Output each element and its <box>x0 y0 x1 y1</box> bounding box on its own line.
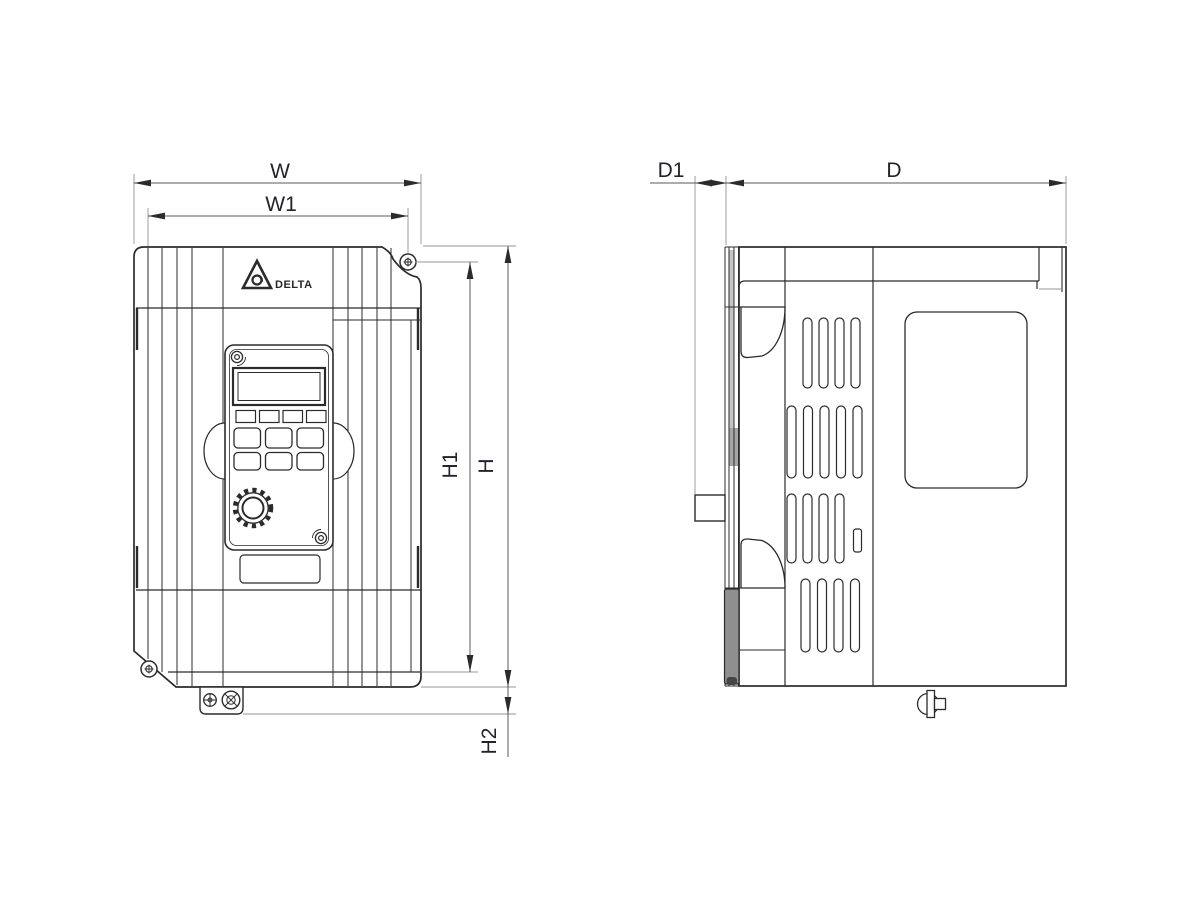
mounting-hole-bottom-left-icon <box>141 661 157 677</box>
function-key <box>307 411 327 423</box>
technical-drawing-canvas: DELTA <box>0 0 1200 900</box>
dim-h-arrow-top <box>505 246 512 263</box>
ground-screw-large-icon <box>222 691 240 709</box>
dim-h-arrow-bottom <box>505 670 512 687</box>
dim-h2-arrow <box>505 697 512 714</box>
dim-h1-arrow-bottom <box>467 655 474 672</box>
dimension-w: W <box>134 160 421 186</box>
dim-h1-arrow-top <box>467 262 474 279</box>
dimension-h2: H2 <box>478 687 511 757</box>
keypad-label-plate <box>240 555 320 583</box>
ground-screw-small-icon <box>204 694 217 707</box>
dimension-w1: W1 <box>148 193 408 219</box>
logo-wordmark: DELTA <box>275 279 313 291</box>
keypad-panel <box>225 345 333 550</box>
keypad-button <box>234 453 261 471</box>
dimension-h: H <box>475 246 511 687</box>
keypad-button <box>297 453 324 471</box>
dim-label-h: H <box>475 458 498 473</box>
keypad-button <box>234 428 261 448</box>
dim-label-w1: W1 <box>265 193 297 216</box>
side-view <box>695 247 1066 718</box>
dim-label-w: W <box>270 160 290 183</box>
keypad-button <box>266 453 293 471</box>
dim-w-arrow-left <box>134 180 151 187</box>
dimension-d1: D1 <box>658 159 727 186</box>
front-view: DELTA <box>134 247 421 714</box>
dim-d1-arrow-left <box>695 180 712 187</box>
dimension-drawing: DELTA <box>0 0 1200 900</box>
function-key <box>283 411 303 423</box>
side-nameplate <box>905 312 1027 488</box>
mounting-plate-bar-cap <box>727 677 738 685</box>
dim-d-arrow-left <box>727 180 744 187</box>
dim-label-d1: D1 <box>658 159 685 182</box>
mounting-plate-bar <box>725 589 740 684</box>
keypad-button <box>297 428 324 448</box>
dimension-h1: H1 <box>439 262 473 672</box>
dim-label-h1: H1 <box>439 452 462 479</box>
function-key <box>236 411 256 423</box>
dim-w1-arrow-right <box>391 213 408 220</box>
dim-w1-arrow-left <box>148 213 165 220</box>
dim-d-arrow-right <box>1049 180 1066 187</box>
mounting-bracket-tab <box>695 495 725 521</box>
terminal-stud-icon <box>918 691 946 718</box>
dim-d1-arrow-right <box>710 180 727 187</box>
dimension-d: D <box>727 159 1066 186</box>
dim-w-arrow-right <box>404 180 421 187</box>
mounting-plate <box>725 247 740 686</box>
mounting-hole-top-right-icon <box>400 254 416 270</box>
keypad-button <box>266 428 293 448</box>
keypad-display <box>233 368 325 405</box>
dim-label-h2: H2 <box>478 728 501 755</box>
dim-label-d: D <box>886 159 901 182</box>
ground-terminal-tab <box>200 687 243 714</box>
function-key <box>260 411 280 423</box>
